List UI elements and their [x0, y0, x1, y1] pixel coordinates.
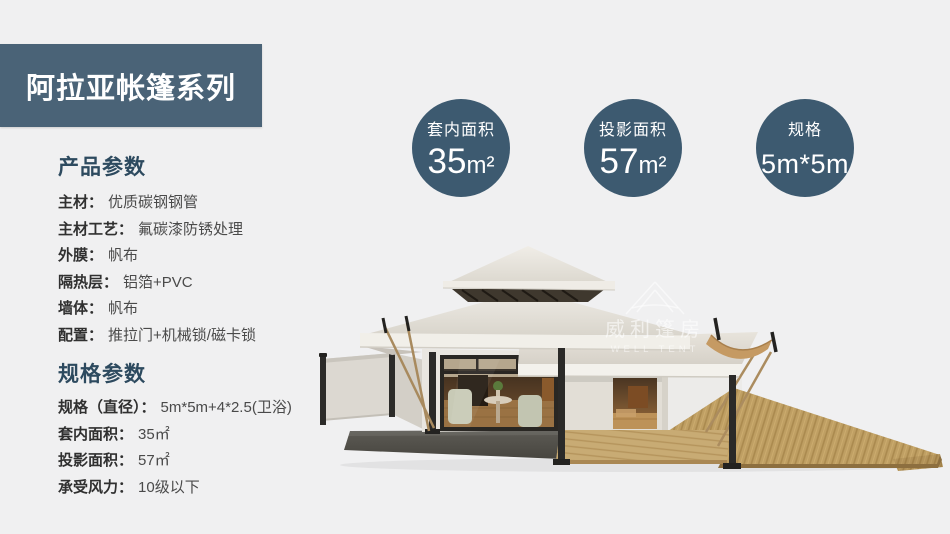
param-label: 外膜： — [58, 247, 103, 264]
param-label: 主材： — [58, 194, 103, 211]
series-title: 阿拉亚帐篷系列 — [26, 65, 236, 107]
badge-label: 投影面积 — [599, 116, 667, 140]
porch-deck — [556, 430, 730, 460]
param-label: 配置： — [58, 327, 103, 344]
badge-unit: m² — [466, 152, 494, 179]
param-value: 帆布 — [108, 300, 138, 317]
badge-label: 规格 — [788, 116, 822, 140]
param-label: 套内面积： — [58, 426, 133, 443]
badge-value: 35m² — [428, 143, 495, 185]
param-value: 35㎡ — [138, 426, 170, 443]
param-value: 5m*5m+4*2.5(卫浴) — [161, 399, 292, 416]
tent-photo: 威利篷房 WELL TENT — [310, 228, 950, 528]
param-label: 隔热层： — [58, 274, 118, 291]
badge-value: 5m*5m — [761, 146, 849, 184]
watermark: 威利篷房 WELL TENT — [605, 282, 705, 355]
badge-label: 套内面积 — [427, 116, 495, 140]
param-value: 氟碳漆防锈处理 — [138, 221, 243, 238]
param-label: 承受风力： — [58, 479, 133, 496]
param-value: 优质碳钢钢管 — [108, 194, 198, 211]
tent-cap-roof — [443, 246, 615, 302]
param-value: 帆布 — [108, 247, 138, 264]
interior-armchair — [518, 395, 542, 427]
param-label: 主材工艺： — [58, 221, 133, 238]
param-value: 57㎡ — [138, 452, 170, 469]
param-label: 投影面积： — [58, 452, 133, 469]
section-heading-product-params: 产品参数 — [58, 156, 358, 180]
param-row: 主材：优质碳钢钢管 — [58, 190, 358, 217]
side-canvas-fence — [319, 350, 425, 430]
badge-value: 57m² — [600, 143, 667, 185]
interior-cabinet — [628, 386, 648, 408]
badge-spec: 规格 5m*5m — [756, 99, 854, 197]
watermark-en: WELL TENT — [611, 344, 700, 355]
param-label: 墙体： — [58, 300, 103, 317]
watermark-cn: 威利篷房 — [605, 318, 705, 341]
interior-cabinet — [542, 378, 554, 401]
param-value: 10级以下 — [138, 479, 200, 496]
param-label: 规格（直径）： — [58, 399, 156, 416]
porch-wall — [560, 374, 668, 430]
badge-interior-area: 套内面积 35m² — [412, 99, 510, 197]
param-value: 铝箔+PVC — [123, 274, 193, 291]
badge-projection-area: 投影面积 57m² — [584, 99, 682, 197]
badge-unit: m² — [638, 152, 666, 179]
interior-flowers — [493, 381, 503, 391]
series-title-banner: 阿拉亚帐篷系列 — [0, 44, 262, 127]
param-value: 推拉门+机械锁/磁卡锁 — [108, 327, 256, 344]
